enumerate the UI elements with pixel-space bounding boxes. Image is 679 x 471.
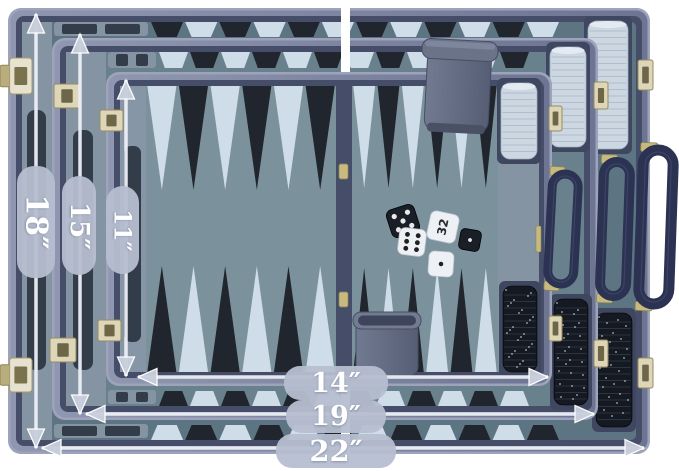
gold-latch bbox=[50, 338, 76, 362]
white-checker-stack bbox=[546, 42, 590, 152]
dimension-label-19in: 19″ bbox=[286, 400, 386, 433]
gold-latch bbox=[594, 340, 608, 367]
gold-latch bbox=[100, 110, 123, 131]
gold-latch bbox=[549, 106, 562, 131]
case-small bbox=[98, 72, 579, 386]
storage-compartment bbox=[54, 424, 148, 438]
dimension-label-11in: 11″ bbox=[106, 186, 139, 274]
white-die-6 bbox=[397, 227, 427, 257]
storage-compartment bbox=[54, 22, 148, 36]
storage-compartment bbox=[108, 390, 156, 404]
black-checker-stack bbox=[592, 308, 636, 432]
dimension-text: 18″ bbox=[21, 194, 51, 249]
dimension-label-14in: 14″ bbox=[284, 366, 388, 400]
dimension-text: 22″ bbox=[309, 437, 362, 466]
dimension-text: 19″ bbox=[311, 403, 361, 430]
dimension-text: 11″ bbox=[111, 209, 134, 251]
white-checker-stack bbox=[497, 78, 541, 164]
product-photo: 32 18″ 15″ 11″ 14″ 19″ 22″ bbox=[0, 0, 679, 471]
black-checker-stack bbox=[499, 281, 541, 377]
dimension-text: 15″ bbox=[66, 202, 92, 250]
gold-latch bbox=[549, 316, 562, 341]
carry-handle bbox=[635, 142, 674, 311]
gold-latch bbox=[638, 358, 653, 388]
doubling-cube: 32 bbox=[426, 210, 460, 244]
dimension-text: 14″ bbox=[311, 370, 361, 397]
gold-latch bbox=[98, 320, 121, 341]
dimension-label-22in: 22″ bbox=[276, 434, 396, 468]
dimension-label-18in: 18″ bbox=[17, 166, 55, 278]
case-clasp-latch bbox=[0, 58, 32, 94]
white-die-1 bbox=[428, 251, 455, 278]
black-checker-stack bbox=[550, 294, 592, 410]
gold-latch bbox=[594, 82, 608, 109]
gold-latch bbox=[638, 60, 653, 90]
storage-compartment bbox=[108, 52, 156, 68]
dimension-label-15in: 15″ bbox=[62, 176, 96, 275]
gold-latch bbox=[54, 84, 80, 108]
case-clasp-latch bbox=[0, 358, 32, 392]
dice-cup-inverted bbox=[418, 38, 499, 135]
black-die-1 bbox=[458, 228, 482, 252]
